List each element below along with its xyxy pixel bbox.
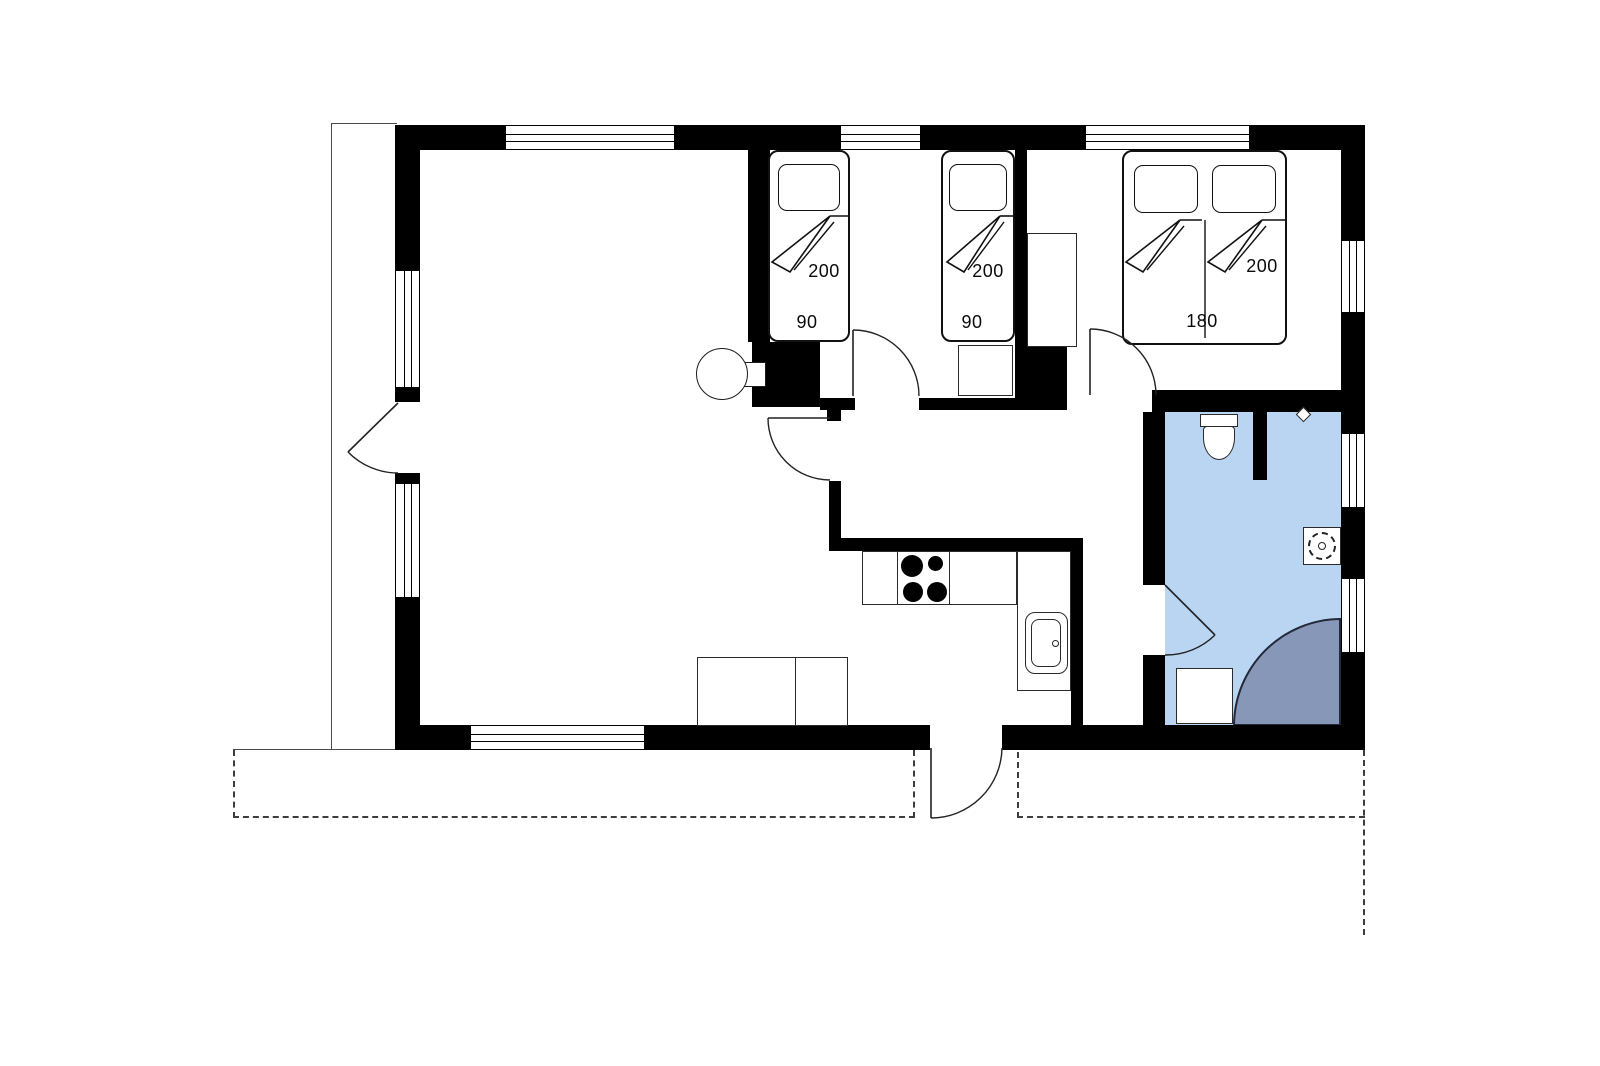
door-leaf xyxy=(348,403,398,452)
stove-burner xyxy=(901,555,923,577)
kitchen-wall-north xyxy=(829,538,1083,551)
door-swing-arc xyxy=(931,748,1002,818)
window xyxy=(1341,433,1365,508)
window xyxy=(1341,240,1365,313)
exterior-wall-top xyxy=(921,125,1085,150)
sink-drain xyxy=(1052,640,1059,647)
floor-plan: 200 90 200 90 200 180 xyxy=(0,0,1600,1066)
dresser xyxy=(958,345,1013,396)
bed-width-label: 90 xyxy=(796,313,817,331)
bathroom-wall-north xyxy=(1152,390,1343,412)
pillow xyxy=(1134,165,1198,213)
pillow xyxy=(1212,165,1276,213)
water-heater-fan-center xyxy=(1318,542,1326,550)
door-swing-arc xyxy=(768,418,830,480)
bed-length-label: 200 xyxy=(1246,257,1278,275)
bathroom-wall-west-upper xyxy=(1143,412,1165,585)
exterior-wall-left xyxy=(395,388,420,402)
kitchen-wall-east xyxy=(1071,551,1083,726)
exterior-wall-left xyxy=(395,473,420,483)
terrace-outline-right xyxy=(1017,752,1365,818)
window xyxy=(395,483,420,598)
bed-length-label: 200 xyxy=(972,262,1004,280)
window xyxy=(1341,578,1365,653)
bathroom-wall-west-lower xyxy=(1143,655,1165,726)
door-swing-arc xyxy=(348,452,398,473)
sofa-divider xyxy=(795,657,796,726)
window xyxy=(1085,125,1250,150)
pillow xyxy=(949,164,1007,211)
overhang-outline-top xyxy=(331,123,397,124)
exterior-wall-bottom xyxy=(1002,725,1365,750)
bed-width-label: 180 xyxy=(1186,312,1218,330)
pillow xyxy=(778,164,840,211)
interior-wall-bedroom-south xyxy=(919,398,1015,410)
door-post xyxy=(827,407,841,421)
interior-wall-bedroom-west xyxy=(748,150,770,342)
sofa-bench xyxy=(697,657,848,726)
exterior-wall-right xyxy=(1341,125,1365,240)
exterior-wall-right xyxy=(1341,313,1365,433)
overhang-outline-vertical xyxy=(331,123,332,750)
stove-burner xyxy=(903,582,923,602)
exterior-wall-top xyxy=(675,125,840,150)
window xyxy=(505,125,675,150)
bed-width-label: 90 xyxy=(961,313,982,331)
exterior-wall-left xyxy=(395,125,420,270)
exterior-wall-right xyxy=(1341,653,1365,750)
window xyxy=(395,270,420,388)
bed-length-label: 200 xyxy=(808,262,840,280)
window xyxy=(840,125,921,150)
exterior-wall-left xyxy=(395,598,420,750)
bathroom-partition-stub xyxy=(1253,412,1267,480)
terrace-outline-right-extension xyxy=(1363,750,1365,935)
window xyxy=(470,725,645,750)
exterior-wall-bottom xyxy=(645,725,930,750)
door-swing-arc xyxy=(853,330,919,396)
stove-burner xyxy=(928,556,943,571)
interior-wall-bedrooms-divider xyxy=(1015,150,1027,347)
exterior-wall-right xyxy=(1341,508,1365,578)
stove-burner xyxy=(927,582,947,602)
wood-stove-icon xyxy=(696,348,748,400)
terrace-outline-left xyxy=(233,750,915,818)
interior-wall-block xyxy=(1015,347,1067,410)
wardrobe xyxy=(1027,233,1077,347)
bathroom-cabinet xyxy=(1176,668,1233,724)
